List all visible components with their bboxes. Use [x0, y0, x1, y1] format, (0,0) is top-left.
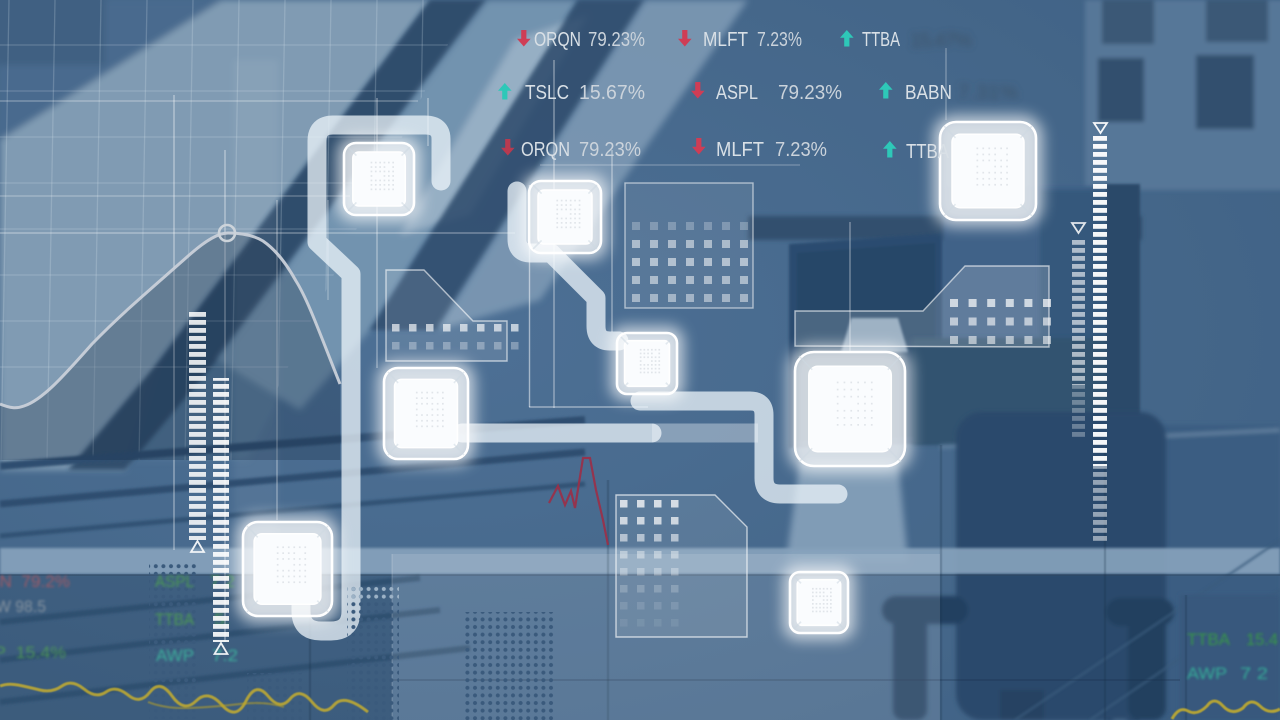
svg-text:MLFT: MLFT	[716, 139, 764, 161]
svg-text:TTBA: TTBA	[862, 29, 900, 51]
svg-text:ASPL: ASPL	[716, 82, 758, 104]
svg-text:ORQN: ORQN	[534, 29, 581, 51]
svg-text:7.23%: 7.23%	[775, 139, 827, 161]
svg-text:79.23%: 79.23%	[579, 139, 641, 161]
svg-text:ASPL: ASPL	[155, 572, 194, 591]
svg-text:TTBA: TTBA	[155, 610, 195, 629]
svg-text:BABN: BABN	[905, 82, 952, 104]
svg-text:W 98.5: W 98.5	[0, 597, 46, 616]
svg-text:7 2: 7 2	[1240, 664, 1268, 683]
svg-text:79.23%: 79.23%	[778, 82, 842, 104]
svg-text:15.67%: 15.67%	[579, 82, 645, 104]
svg-text:TTBA: TTBA	[906, 141, 950, 163]
svg-text:P 15.4%: P 15.4%	[0, 643, 66, 662]
svg-text:AWP: AWP	[1187, 664, 1227, 683]
svg-text:4N 79.2%: 4N 79.2%	[0, 572, 70, 591]
svg-text:15.47%: 15.47%	[910, 30, 972, 52]
svg-text:15.4: 15.4	[1246, 630, 1278, 649]
svg-text:ORQN: ORQN	[521, 139, 570, 161]
svg-text:AWP: AWP	[156, 646, 194, 665]
svg-text:TTBA: TTBA	[1187, 630, 1231, 649]
svg-text:MLFT: MLFT	[703, 29, 748, 51]
svg-text:7.31%: 7.31%	[958, 82, 1018, 104]
svg-text:TSLC: TSLC	[525, 82, 569, 104]
svg-text:79.23%: 79.23%	[588, 29, 645, 51]
svg-text:7.23%: 7.23%	[757, 29, 802, 51]
